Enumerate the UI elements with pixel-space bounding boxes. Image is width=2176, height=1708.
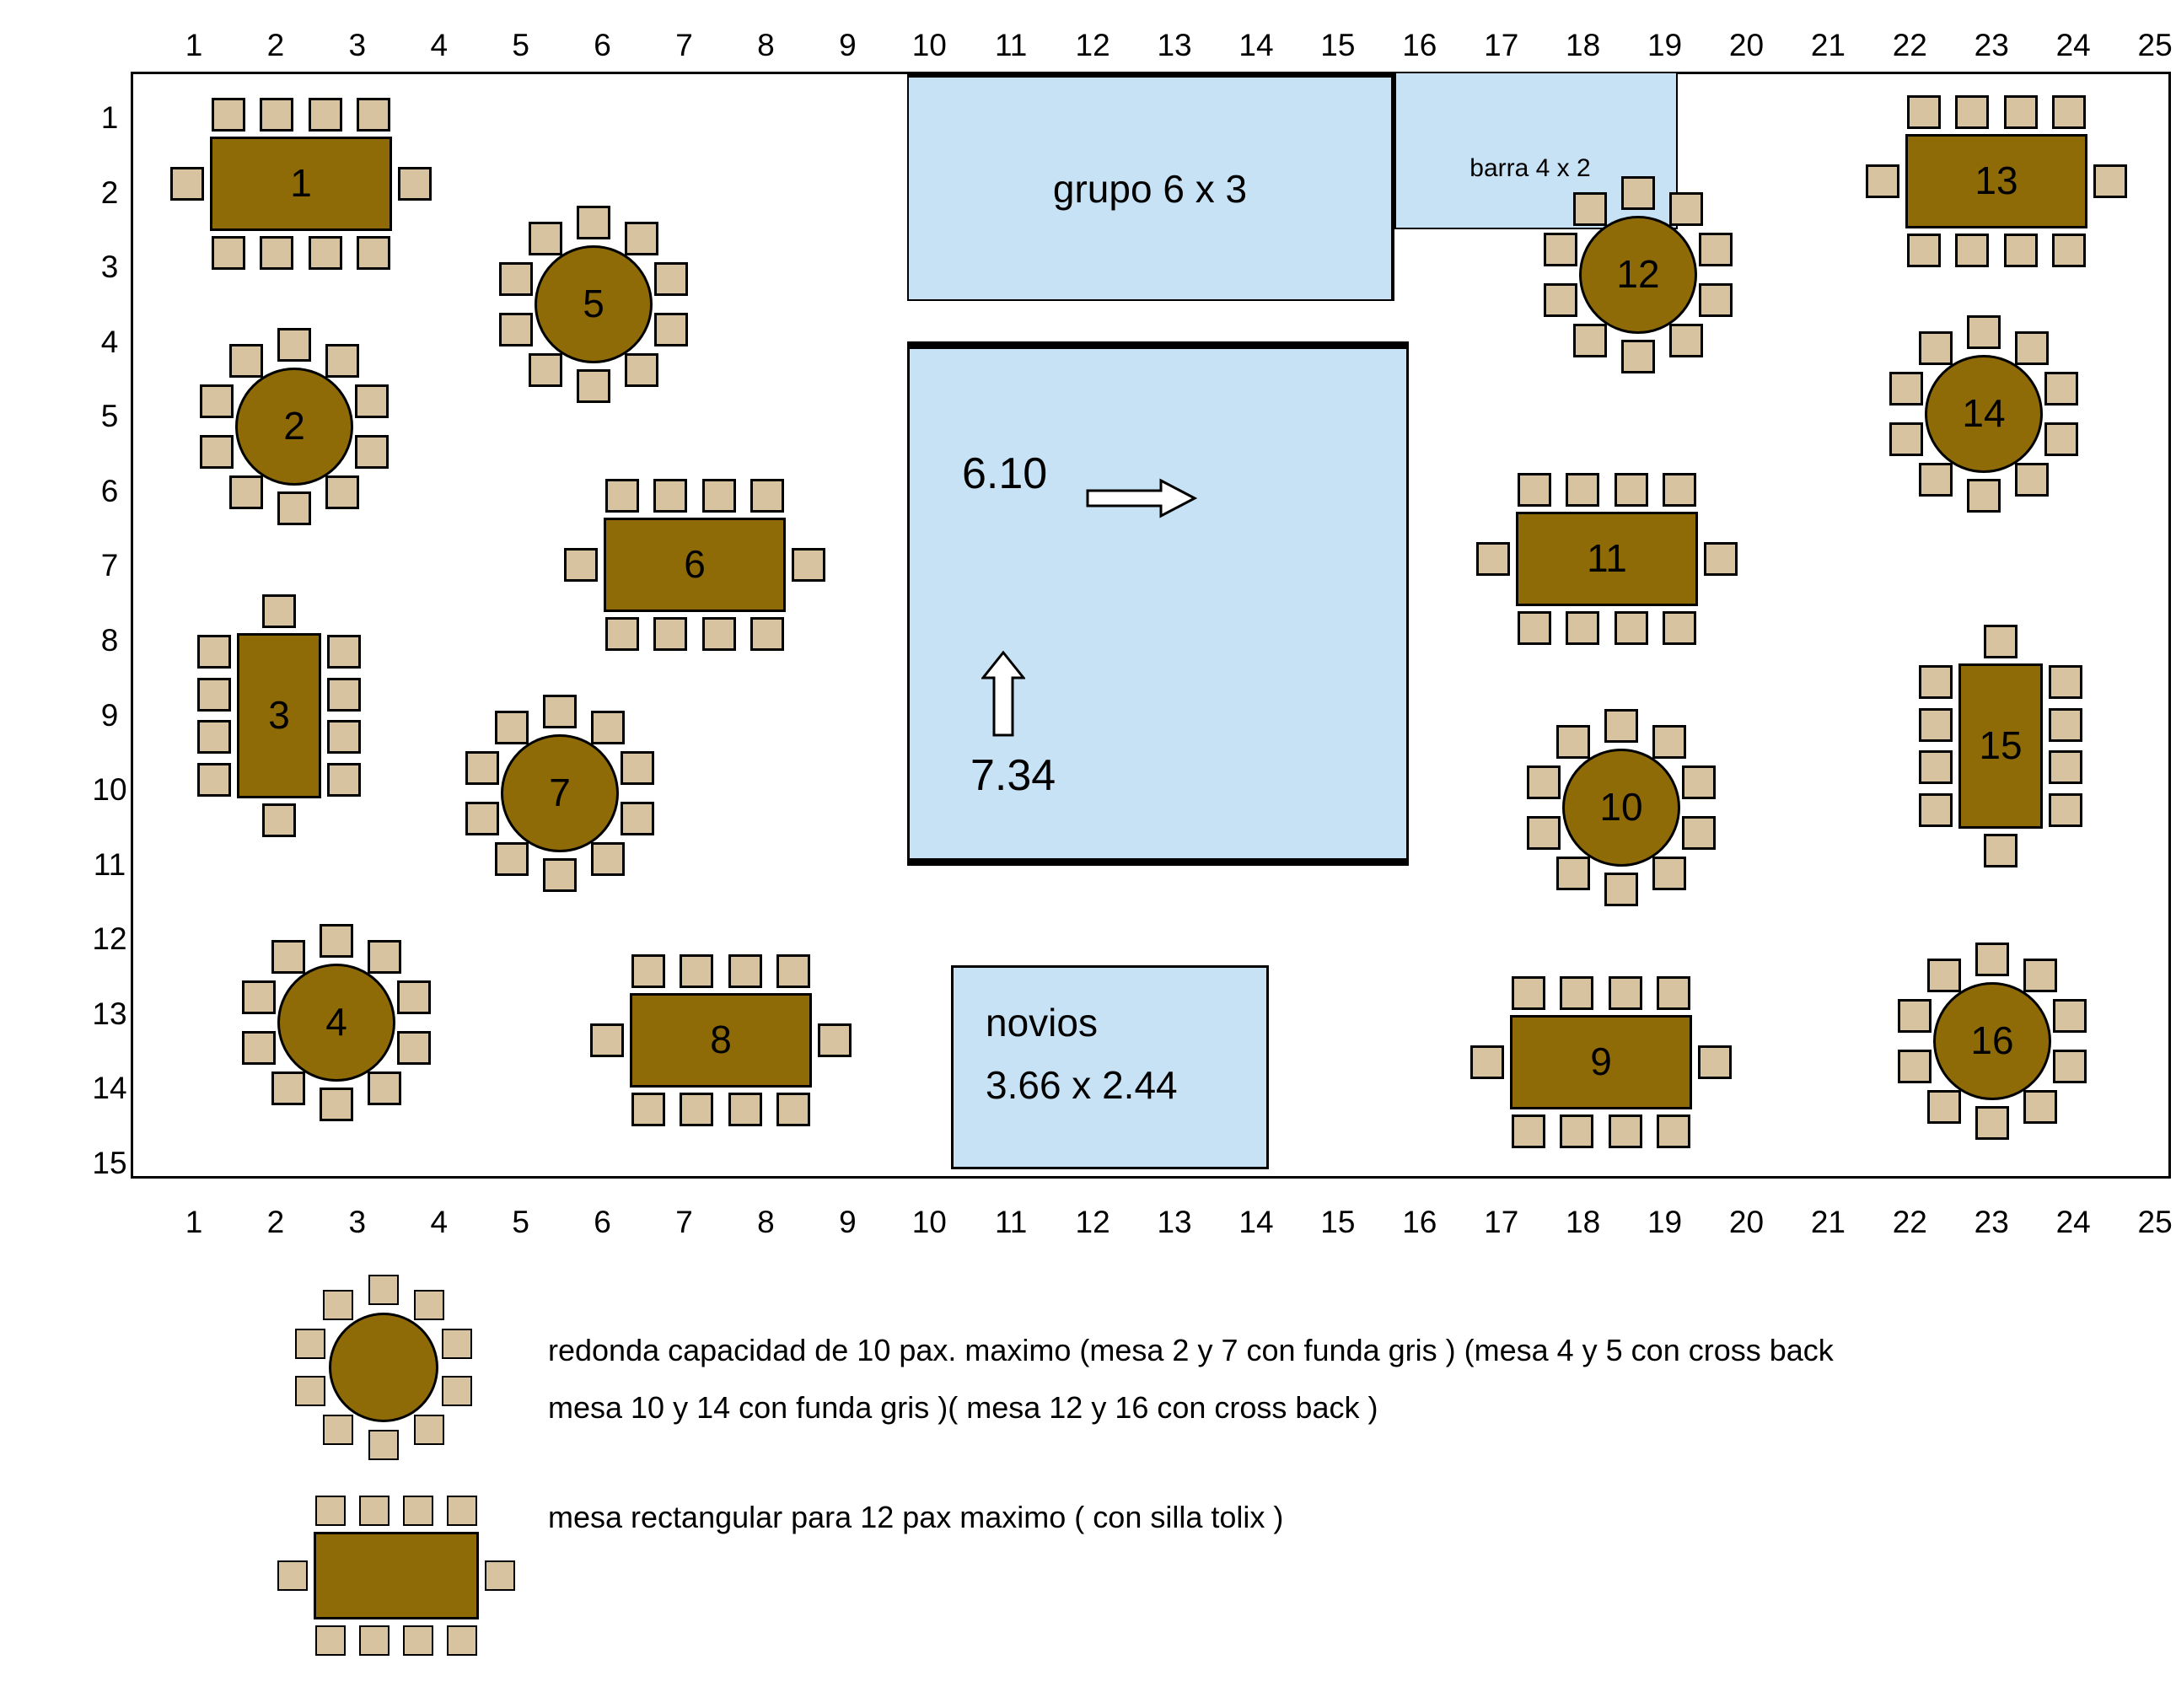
col-label-top: 14 [1229, 27, 1283, 64]
col-label-top: 12 [1066, 27, 1120, 64]
table-10-chair [1652, 725, 1686, 759]
table-1-chair [309, 236, 342, 270]
table-14-chair [1919, 463, 1953, 497]
col-label-bottom: 10 [902, 1204, 956, 1241]
table-5-chair [625, 222, 658, 255]
table-2-chair [229, 475, 263, 509]
legend-round-table-icon-chair [442, 1329, 472, 1359]
table-1-chair [309, 98, 342, 132]
row-label-left: 3 [83, 249, 137, 286]
col-label-bottom: 14 [1229, 1204, 1283, 1241]
col-label-bottom: 13 [1147, 1204, 1201, 1241]
table-12-chair [1544, 233, 1577, 266]
row-label-left: 2 [83, 175, 137, 212]
table-7-number: 7 [501, 770, 619, 815]
table-13-chair [2004, 95, 2038, 129]
table-3-chair [262, 803, 296, 837]
col-label-bottom: 15 [1311, 1204, 1365, 1241]
table-8-chair [818, 1023, 852, 1057]
table-6-chair [605, 617, 639, 651]
col-label-bottom: 3 [330, 1204, 384, 1241]
col-label-bottom: 24 [2046, 1204, 2100, 1241]
table-14-chair [1889, 422, 1923, 456]
table-10-chair [1604, 873, 1638, 906]
table-15-chair [1919, 793, 1953, 827]
table-13-chair [2093, 164, 2127, 198]
table-9-chair [1657, 976, 1690, 1010]
table-7-chair [621, 751, 654, 785]
table-16-chair [1927, 1090, 1961, 1124]
table-10-number: 10 [1562, 784, 1680, 830]
table-15-number: 15 [1942, 722, 2060, 768]
table-4-chair [320, 924, 353, 958]
table-11-chair [1566, 473, 1599, 507]
table-12-number: 12 [1579, 251, 1697, 297]
table-13-chair [1866, 164, 1899, 198]
col-label-bottom: 16 [1393, 1204, 1447, 1241]
table-5-chair [577, 206, 610, 239]
table-13-chair [2004, 234, 2038, 267]
row-label-left: 15 [83, 1145, 137, 1182]
table-14-chair [2015, 463, 2049, 497]
table-10-chair [1682, 765, 1716, 799]
table-2-chair [355, 435, 389, 469]
table-10-chair [1604, 709, 1638, 743]
table-5-chair [529, 353, 562, 387]
col-label-bottom: 8 [739, 1204, 792, 1241]
table-14-chair [2044, 422, 2078, 456]
table-16-chair [1898, 1050, 1932, 1083]
table-14-chair [1919, 331, 1953, 365]
col-label-bottom: 2 [249, 1204, 303, 1241]
row-label-left: 8 [83, 622, 137, 659]
grupo-label: grupo 6 x 3 [1053, 166, 1247, 212]
col-label-top: 24 [2046, 27, 2100, 64]
table-2-chair [277, 328, 311, 362]
col-label-top: 20 [1719, 27, 1773, 64]
table-13-chair [1955, 95, 1989, 129]
table-13-chair [2052, 95, 2086, 129]
row-label-left: 14 [83, 1070, 137, 1107]
table-7-chair [465, 802, 499, 835]
seating-plan-canvas: 1234567891011121314151617181920212223242… [0, 0, 2176, 1708]
table-6-chair [653, 617, 687, 651]
col-label-bottom: 1 [167, 1204, 221, 1241]
legend-rect-table-icon-chair [315, 1496, 346, 1526]
table-16-chair [1898, 999, 1932, 1033]
col-label-top: 7 [658, 27, 712, 64]
table-13-chair [1907, 95, 1941, 129]
table-16-chair [2053, 1050, 2087, 1083]
table-7-chair [495, 711, 529, 744]
table-10-chair [1652, 857, 1686, 890]
legend-round-table-icon-chair [323, 1290, 353, 1320]
table-12-chair [1669, 324, 1703, 357]
table-14-chair [1889, 372, 1923, 406]
table-9-chair [1560, 1114, 1593, 1148]
table-7-chair [591, 711, 625, 744]
table-1-chair [357, 98, 390, 132]
table-8-chair [590, 1023, 624, 1057]
table-2-chair [277, 491, 311, 525]
table-2-chair [229, 344, 263, 378]
row-label-left: 13 [83, 996, 137, 1033]
table-12-chair [1544, 283, 1577, 317]
legend-rect-table-icon-chair [485, 1560, 515, 1591]
table-15-chair [1984, 834, 2018, 867]
table-1-chair [398, 167, 432, 201]
table-12-chair [1621, 176, 1655, 210]
legend-rect-table-icon-chair [447, 1625, 477, 1656]
table-2-chair [200, 384, 234, 418]
table-1-chair [357, 236, 390, 270]
table-3-chair [327, 635, 361, 669]
table-11-chair [1476, 542, 1510, 576]
row-label-left: 7 [83, 547, 137, 584]
table-4-chair [368, 1072, 401, 1105]
table-4-chair [320, 1088, 353, 1121]
col-label-bottom: 19 [1638, 1204, 1692, 1241]
col-label-top: 3 [330, 27, 384, 64]
table-12-chair [1669, 192, 1703, 226]
table-3-chair [197, 635, 231, 669]
table-7-chair [543, 858, 577, 892]
legend-rect-table-icon-top [314, 1532, 479, 1619]
table-9-chair [1470, 1045, 1504, 1079]
table-4-chair [397, 1031, 431, 1065]
row-label-left: 5 [83, 398, 137, 435]
legend-round-table-icon-chair [368, 1275, 399, 1305]
col-label-top: 25 [2128, 27, 2176, 64]
zone-dance-floor: 6.10 7.34 [907, 341, 1409, 866]
table-6-chair [653, 479, 687, 513]
row-label-left: 10 [83, 771, 137, 808]
col-label-bottom: 7 [658, 1204, 712, 1241]
table-6-chair [750, 617, 784, 651]
table-2-chair [325, 344, 359, 378]
table-1-chair [212, 98, 245, 132]
table-1-chair [260, 236, 293, 270]
table-4-number: 4 [277, 999, 395, 1045]
table-11-chair [1615, 611, 1648, 645]
table-16-chair [2053, 999, 2087, 1033]
table-10-chair [1682, 816, 1716, 850]
legend-round-table-icon-chair [414, 1290, 444, 1320]
col-label-top: 17 [1475, 27, 1529, 64]
table-2-chair [200, 435, 234, 469]
col-label-top: 4 [412, 27, 466, 64]
arrow-right-icon [1086, 478, 1197, 518]
table-11-chair [1518, 611, 1551, 645]
col-label-bottom: 21 [1801, 1204, 1855, 1241]
table-14-chair [2044, 372, 2078, 406]
table-15-chair [2049, 793, 2082, 827]
legend-round-table-icon-chair [323, 1415, 353, 1445]
table-7-chair [543, 695, 577, 728]
table-5-chair [529, 222, 562, 255]
col-label-top: 16 [1393, 27, 1447, 64]
table-5-number: 5 [535, 281, 653, 326]
table-11-chair [1566, 611, 1599, 645]
table-4-chair [271, 1072, 305, 1105]
table-11-chair [1663, 611, 1696, 645]
zone-grupo: grupo 6 x 3 [907, 72, 1394, 301]
col-label-top: 13 [1147, 27, 1201, 64]
legend-round-table-icon-chair [414, 1415, 444, 1445]
table-8-chair [728, 1093, 762, 1126]
table-9-chair [1698, 1045, 1732, 1079]
table-13-chair [1955, 234, 1989, 267]
col-label-top: 6 [576, 27, 630, 64]
table-11-chair [1518, 473, 1551, 507]
row-label-left: 4 [83, 324, 137, 361]
table-6-chair [702, 479, 736, 513]
col-label-top: 2 [249, 27, 303, 64]
table-11-number: 11 [1548, 535, 1666, 581]
table-7-chair [495, 842, 529, 876]
table-8-chair [728, 954, 762, 988]
table-2-chair [355, 384, 389, 418]
table-5-chair [654, 262, 688, 296]
col-label-bottom: 20 [1719, 1204, 1773, 1241]
legend-rect-table-icon-chair [447, 1496, 477, 1526]
table-13-chair [1907, 234, 1941, 267]
col-label-top: 23 [1964, 27, 2018, 64]
table-9-chair [1657, 1114, 1690, 1148]
table-2-number: 2 [235, 403, 353, 448]
col-label-top: 10 [902, 27, 956, 64]
table-4-chair [397, 980, 431, 1014]
dance-width-label: 6.10 [962, 448, 1047, 499]
table-5-chair [577, 369, 610, 403]
table-9-number: 9 [1542, 1039, 1660, 1084]
col-label-bottom: 11 [984, 1204, 1038, 1241]
table-6-chair [750, 479, 784, 513]
table-16-chair [1975, 1106, 2009, 1140]
table-15-chair [1919, 665, 1953, 699]
table-9-chair [1609, 1114, 1642, 1148]
table-9-chair [1512, 976, 1545, 1010]
table-10-chair [1556, 725, 1590, 759]
col-label-bottom: 9 [820, 1204, 874, 1241]
legend-rect-table-icon-chair [277, 1560, 308, 1591]
table-7-chair [591, 842, 625, 876]
col-label-top: 15 [1311, 27, 1365, 64]
table-15-chair [1984, 625, 2018, 658]
table-4-chair [368, 940, 401, 974]
col-label-top: 21 [1801, 27, 1855, 64]
table-14-number: 14 [1925, 390, 2043, 436]
novios-label: novios [986, 991, 1098, 1054]
legend-rect-table-icon-chair [403, 1625, 433, 1656]
table-5-chair [654, 313, 688, 346]
zone-novios: novios 3.66 x 2.44 [951, 965, 1269, 1169]
col-label-bottom: 17 [1475, 1204, 1529, 1241]
legend-rect-table-icon-chair [359, 1625, 390, 1656]
table-3-chair [197, 763, 231, 797]
table-4-chair [242, 980, 276, 1014]
col-label-top: 8 [739, 27, 792, 64]
table-1-chair [260, 98, 293, 132]
table-1-chair [212, 236, 245, 270]
table-6-chair [702, 617, 736, 651]
table-6-number: 6 [636, 541, 754, 587]
table-14-chair [2015, 331, 2049, 365]
legend-rect-text-line1: mesa rectangular para 12 pax maximo ( co… [548, 1501, 1283, 1534]
col-label-top: 5 [494, 27, 548, 64]
col-label-top: 22 [1883, 27, 1937, 64]
table-1-chair [170, 167, 204, 201]
row-label-left: 12 [83, 921, 137, 958]
table-5-chair [499, 262, 533, 296]
table-12-chair [1621, 340, 1655, 373]
col-label-bottom: 5 [494, 1204, 548, 1241]
table-16-chair [1975, 943, 2009, 976]
legend-round-table-icon-chair [442, 1376, 472, 1406]
table-16-chair [2023, 1090, 2057, 1124]
table-6-chair [792, 548, 825, 582]
table-11-chair [1704, 542, 1738, 576]
legend-round-table-icon-chair [368, 1430, 399, 1460]
col-label-bottom: 23 [1964, 1204, 2018, 1241]
table-9-chair [1609, 976, 1642, 1010]
legend-round-text-line2: mesa 10 y 14 con funda gris )( mesa 12 y… [548, 1391, 1378, 1425]
table-13-chair [2052, 234, 2086, 267]
table-9-chair [1512, 1114, 1545, 1148]
row-label-left: 1 [83, 99, 137, 137]
table-3-number: 3 [220, 692, 338, 738]
table-3-chair [262, 594, 296, 628]
row-label-left: 11 [83, 846, 137, 884]
col-label-bottom: 6 [576, 1204, 630, 1241]
table-16-chair [1927, 959, 1961, 992]
table-12-chair [1699, 283, 1733, 317]
col-label-top: 9 [820, 27, 874, 64]
table-10-chair [1527, 816, 1561, 850]
legend-round-table-icon-chair [295, 1376, 325, 1406]
legend-round-text-line1: redonda capacidad de 10 pax. maximo (mes… [548, 1334, 1834, 1367]
table-14-chair [1967, 315, 2001, 349]
col-label-top: 18 [1556, 27, 1610, 64]
table-8-chair [776, 954, 810, 988]
table-4-chair [242, 1031, 276, 1065]
table-8-number: 8 [662, 1017, 780, 1062]
table-6-chair [564, 548, 598, 582]
col-label-bottom: 18 [1556, 1204, 1610, 1241]
col-label-bottom: 12 [1066, 1204, 1120, 1241]
row-label-left: 6 [83, 473, 137, 510]
col-label-bottom: 25 [2128, 1204, 2176, 1241]
table-12-chair [1573, 324, 1607, 357]
legend-round-table-icon-chair [295, 1329, 325, 1359]
legend-rect-table-icon-chair [359, 1496, 390, 1526]
table-8-chair [631, 1093, 665, 1126]
table-7-chair [465, 751, 499, 785]
table-15-chair [2049, 665, 2082, 699]
table-8-chair [631, 954, 665, 988]
table-16-chair [2023, 959, 2057, 992]
table-5-chair [499, 313, 533, 346]
legend-round-table-icon-top [329, 1313, 438, 1422]
table-11-chair [1663, 473, 1696, 507]
table-10-chair [1527, 765, 1561, 799]
table-1-number: 1 [242, 160, 360, 206]
arrow-up-icon [981, 651, 1025, 737]
table-2-chair [325, 475, 359, 509]
table-16-number: 16 [1933, 1018, 2051, 1063]
table-10-chair [1556, 857, 1590, 890]
dance-height-label: 7.34 [970, 750, 1056, 801]
table-4-chair [271, 940, 305, 974]
col-label-top: 11 [984, 27, 1038, 64]
table-8-chair [680, 954, 713, 988]
legend-rect-table-icon-chair [403, 1496, 433, 1526]
col-label-top: 1 [167, 27, 221, 64]
table-13-number: 13 [1937, 158, 2055, 203]
legend-rect-table-icon-chair [315, 1625, 346, 1656]
table-7-chair [621, 802, 654, 835]
novios-size-label: 3.66 x 2.44 [986, 1054, 1178, 1116]
table-14-chair [1967, 479, 2001, 513]
table-5-chair [625, 353, 658, 387]
table-8-chair [680, 1093, 713, 1126]
table-12-chair [1699, 233, 1733, 266]
table-11-chair [1615, 473, 1648, 507]
table-6-chair [605, 479, 639, 513]
col-label-top: 19 [1638, 27, 1692, 64]
table-12-chair [1573, 192, 1607, 226]
table-9-chair [1560, 976, 1593, 1010]
table-3-chair [327, 763, 361, 797]
row-label-left: 9 [83, 697, 137, 734]
col-label-bottom: 4 [412, 1204, 466, 1241]
table-8-chair [776, 1093, 810, 1126]
col-label-bottom: 22 [1883, 1204, 1937, 1241]
